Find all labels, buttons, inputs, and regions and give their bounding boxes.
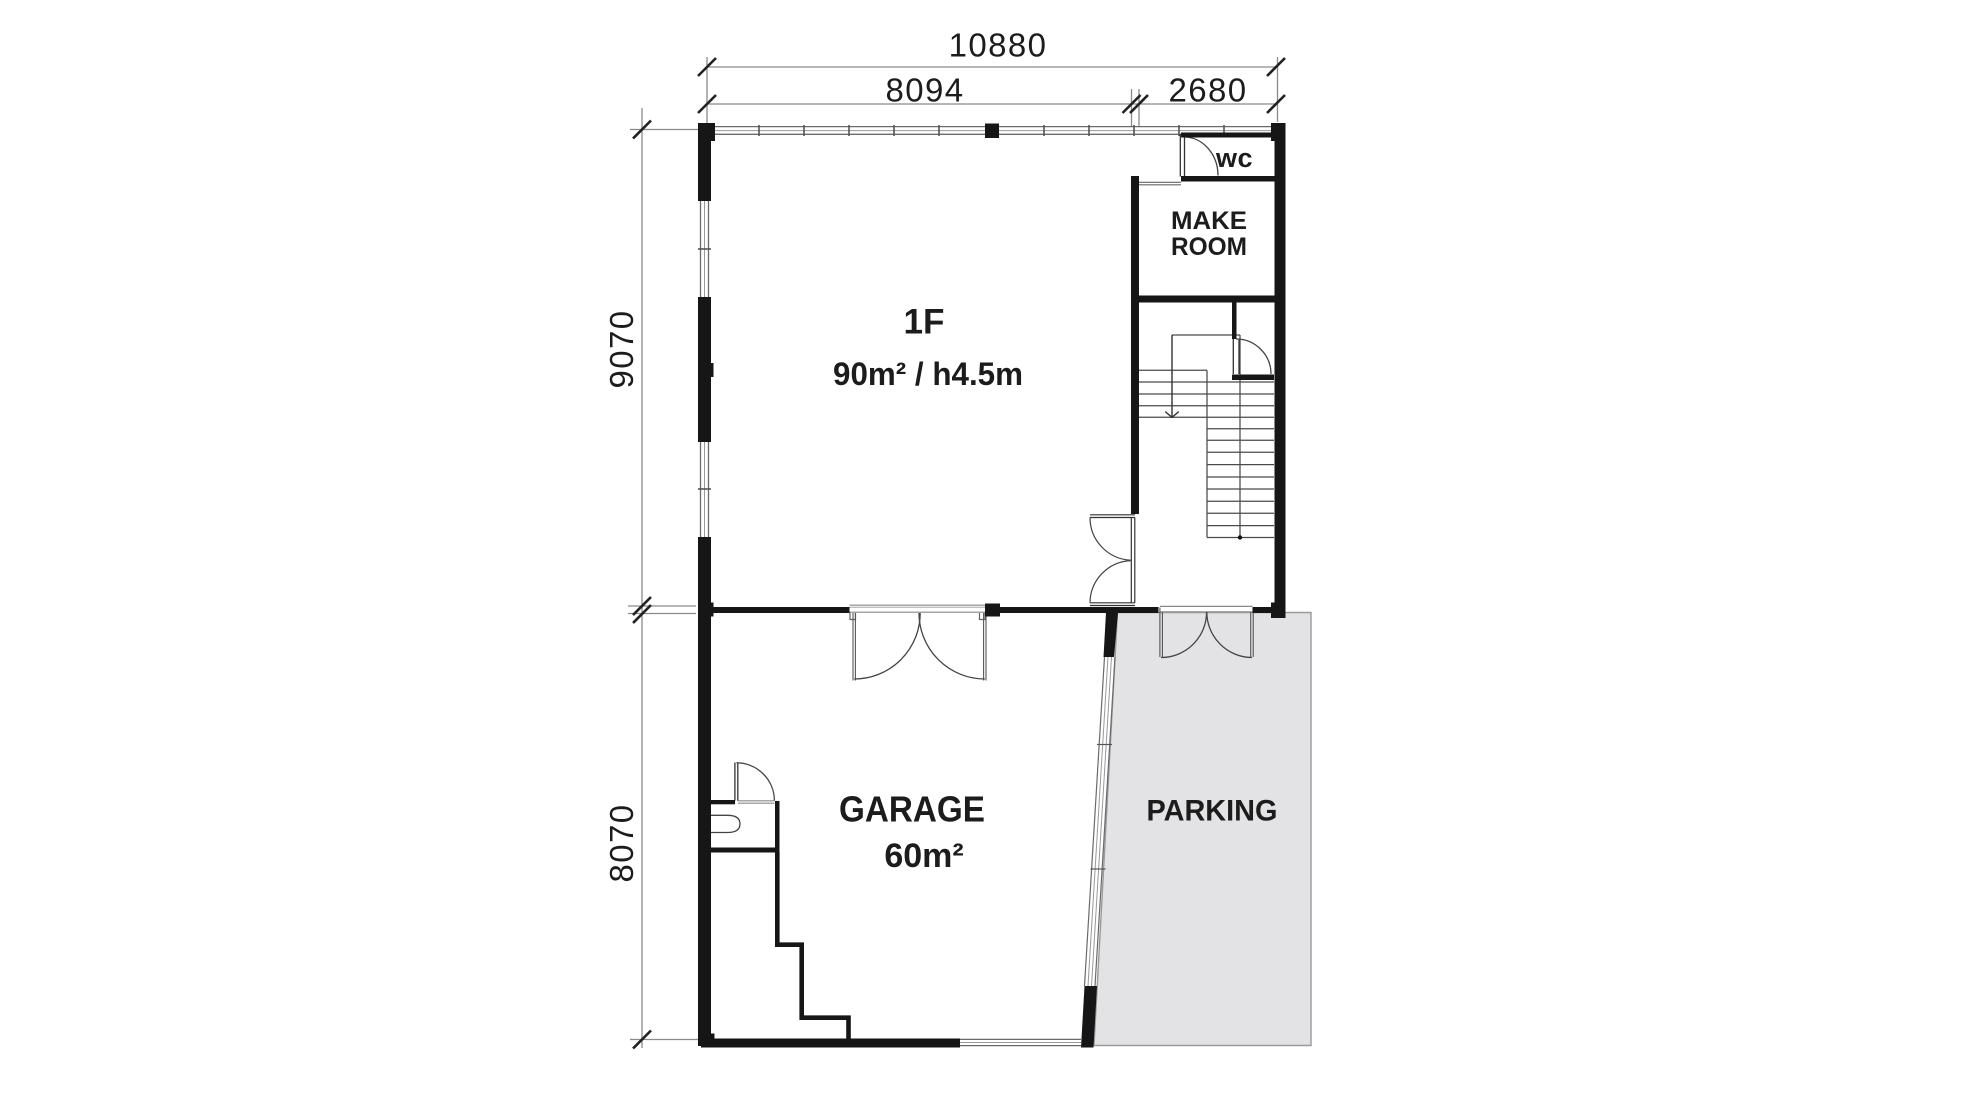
svg-text:ROOM: ROOM <box>1171 233 1247 261</box>
svg-text:2680: 2680 <box>1168 72 1247 109</box>
svg-text:8070: 8070 <box>603 803 640 882</box>
svg-text:10880: 10880 <box>949 27 1048 64</box>
svg-text:PARKING: PARKING <box>1147 795 1278 828</box>
svg-text:1F: 1F <box>904 303 945 342</box>
svg-text:9070: 9070 <box>603 309 640 388</box>
svg-text:GARAGE: GARAGE <box>839 789 985 830</box>
svg-text:60m²: 60m² <box>884 837 963 875</box>
svg-text:wc: wc <box>1215 143 1253 173</box>
svg-text:8094: 8094 <box>885 72 964 109</box>
svg-text:90m² / h4.5m: 90m² / h4.5m <box>833 356 1023 392</box>
svg-text:MAKE: MAKE <box>1171 207 1247 235</box>
